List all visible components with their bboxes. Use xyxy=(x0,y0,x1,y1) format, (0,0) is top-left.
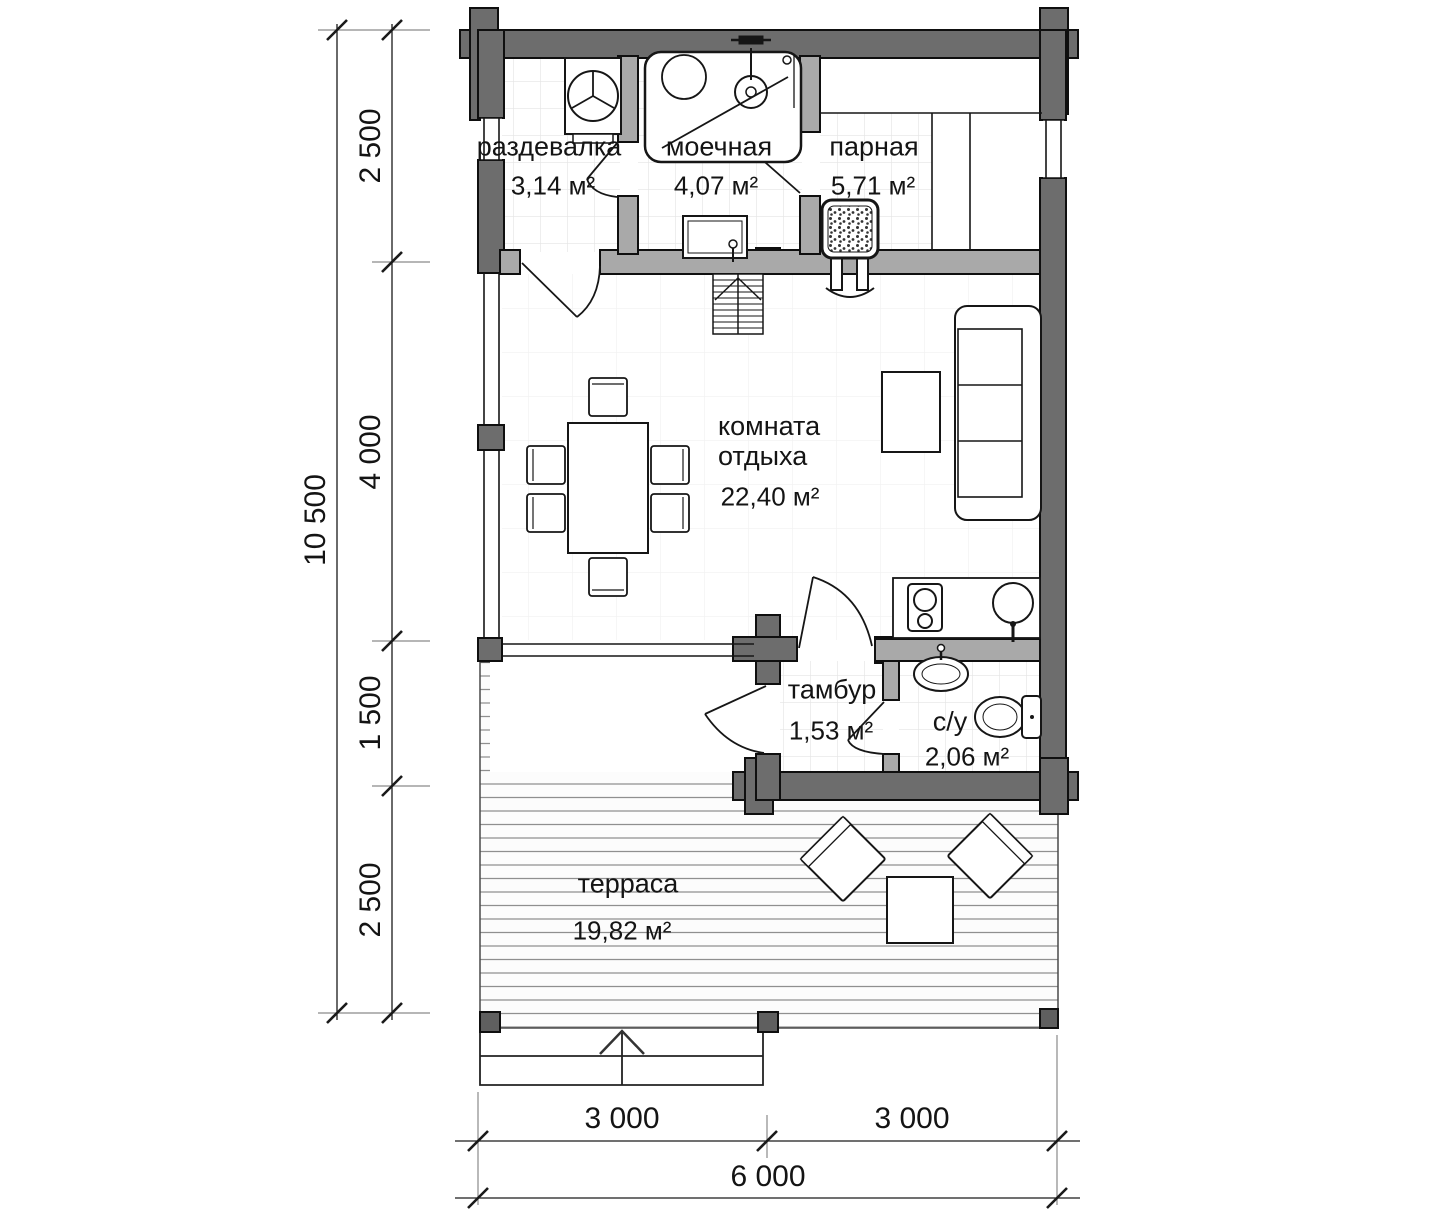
dim-label-vertical-3: 2 500 xyxy=(354,862,388,937)
hob-icon xyxy=(908,584,942,631)
room-label-parnaya: парная xyxy=(829,132,918,163)
toilet-icon xyxy=(975,696,1041,738)
terrace-table-icon xyxy=(887,877,953,943)
chair-icon xyxy=(651,446,689,484)
chair-icon xyxy=(651,494,689,532)
dim-label-vertical-1: 4 000 xyxy=(354,414,388,489)
dining-table-icon xyxy=(568,423,648,553)
room-area-razdevalka: 3,14 м² xyxy=(511,171,595,202)
dim-label-vertical-total: 10 500 xyxy=(299,474,333,566)
room-area-moechnaya: 4,07 м² xyxy=(674,171,758,202)
entry-steps xyxy=(480,1028,763,1085)
chair-icon xyxy=(527,446,565,484)
window-right xyxy=(1043,120,1064,178)
kitchen-counter-icon xyxy=(893,578,1040,642)
room-area-terrasa: 19,82 м² xyxy=(573,916,672,947)
stairs-icon xyxy=(713,274,763,334)
room-label-tambur: тамбур xyxy=(788,675,876,706)
room-area-parnaya: 5,71 м² xyxy=(831,171,915,202)
chair-icon xyxy=(527,494,565,532)
dim-label-vertical-0: 2 500 xyxy=(354,108,388,183)
room-label-komnata-otdyha: комната отдыха xyxy=(718,412,883,471)
washing-machine-icon xyxy=(565,58,621,143)
room-area-su: 2,06 м² xyxy=(925,742,1009,773)
coffee-table-icon xyxy=(882,372,940,452)
room-area-tambur: 1,53 м² xyxy=(789,716,873,747)
room-label-razdevalka: раздевалка xyxy=(477,132,622,163)
bench-icon xyxy=(683,216,747,262)
room-label-su: с/у xyxy=(933,707,968,738)
dim-label-vertical-2: 1 500 xyxy=(354,675,388,750)
room-label-moechnaya: моечная xyxy=(666,132,772,163)
room-label-terrasa: терраса xyxy=(578,869,679,900)
floor-plan-canvas: раздевалка 3,14 м² моечная 4,07 м² парна… xyxy=(0,0,1430,1216)
dim-label-horizontal-1: 3 000 xyxy=(874,1102,949,1136)
room-area-komnata-otdyha: 22,40 м² xyxy=(721,482,820,513)
dim-label-horizontal-0: 3 000 xyxy=(584,1102,659,1136)
chair-icon xyxy=(589,378,627,416)
chair-icon xyxy=(589,558,627,596)
dim-label-horizontal-total: 6 000 xyxy=(730,1160,805,1194)
sofa-icon xyxy=(955,306,1041,520)
